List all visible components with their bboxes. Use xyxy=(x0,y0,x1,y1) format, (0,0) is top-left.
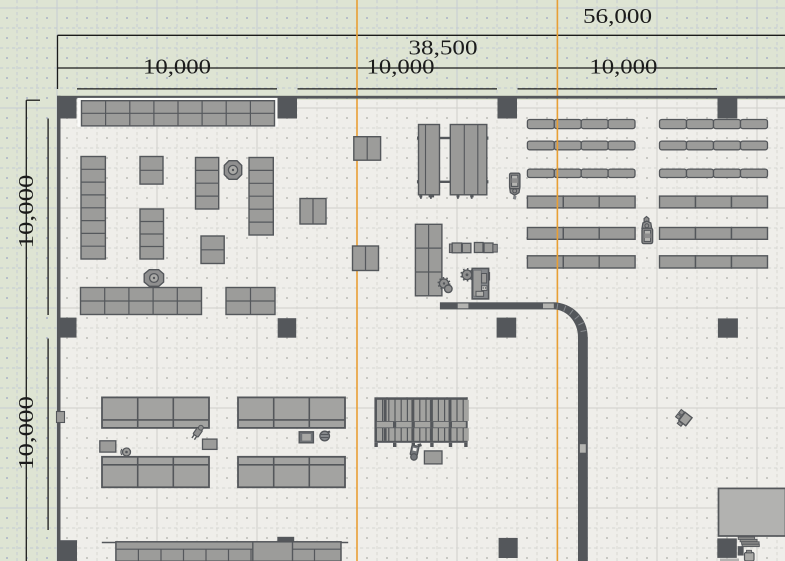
svg-text:10,000: 10,000 xyxy=(367,54,435,78)
svg-text:10,000: 10,000 xyxy=(589,54,657,78)
svg-text:10,000: 10,000 xyxy=(14,175,38,249)
svg-text:56,000: 56,000 xyxy=(583,4,652,28)
svg-text:10,000: 10,000 xyxy=(143,54,211,78)
svg-text:10,000: 10,000 xyxy=(14,396,38,470)
